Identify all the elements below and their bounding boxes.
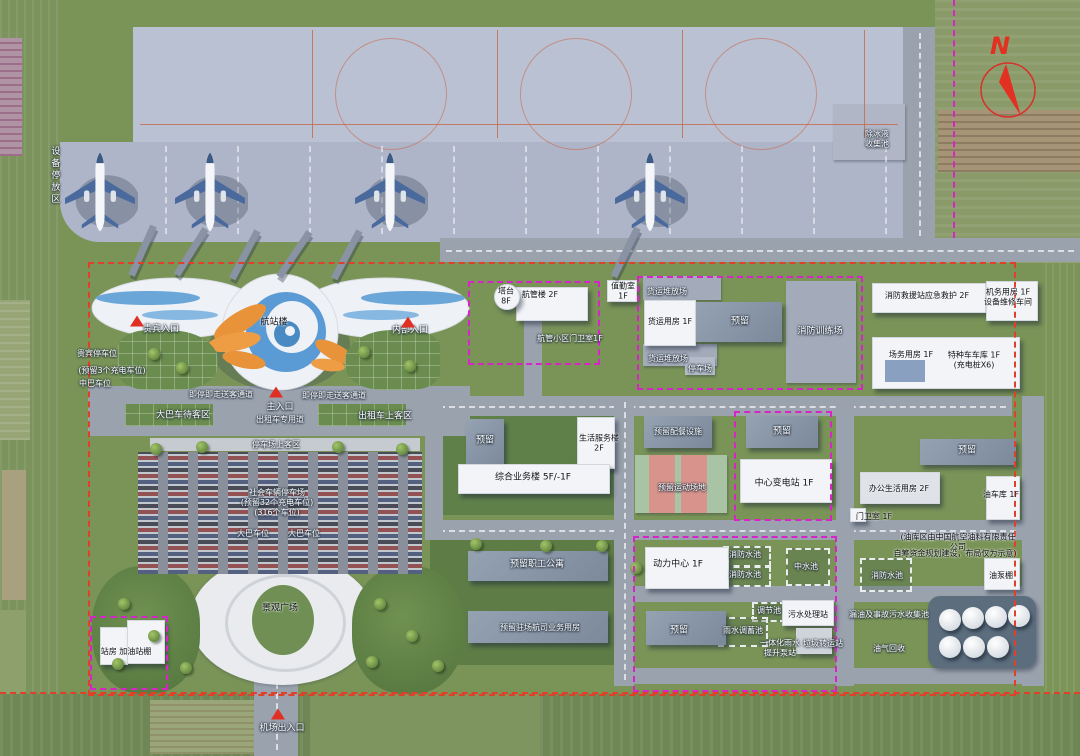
farmland-left-pink: [0, 38, 22, 156]
farmland-bottom-dirt: [150, 700, 255, 754]
svg-text:N: N: [990, 32, 1010, 60]
deicing-pad: [833, 104, 905, 160]
apron-marking: [682, 30, 683, 138]
stand-divider: [525, 146, 527, 234]
airport-master-plan: N N 设备停放区 除冰液 收集池 贵宾入口 内部入口 航站楼 贵宾停车位 (预…: [0, 0, 1080, 756]
south-boundary-line: [0, 692, 1080, 694]
stand-divider: [309, 146, 311, 234]
stand-divider: [813, 146, 815, 234]
vip-entrance-marker-icon: [130, 316, 144, 327]
stand-divider: [453, 146, 455, 234]
aircraft-icon: [62, 146, 138, 241]
farmland-left-patch2: [0, 300, 30, 440]
farmland-left-patch3: [2, 470, 26, 600]
stand-divider: [885, 146, 887, 234]
farmland-right: [1045, 263, 1080, 700]
airport-gate-marker-icon: [271, 709, 285, 720]
aircraft-icon: [352, 146, 428, 241]
apron-service-road: [903, 27, 935, 242]
east-airside-boundary: [953, 0, 955, 238]
site-boundary: [88, 262, 1016, 696]
apron-marking: [497, 30, 498, 138]
apron-marking: [312, 30, 313, 138]
stand-divider: [741, 146, 743, 234]
main-entrance-marker-icon: [269, 387, 283, 398]
apron-arc-marking: [520, 38, 632, 150]
stand-divider: [165, 146, 167, 234]
internal-entrance-marker-icon: [401, 317, 415, 328]
apron-arc-marking: [335, 38, 447, 150]
airside-perimeter-road: [440, 238, 1080, 262]
aircraft-icon: [172, 146, 248, 241]
aircraft-icon: [612, 146, 688, 241]
apron-arc-marking: [705, 38, 817, 150]
farmland-bottom-light: [310, 694, 540, 756]
apron-marking: [864, 30, 865, 138]
stand-divider: [597, 146, 599, 234]
compass-icon: N: [968, 28, 1048, 128]
